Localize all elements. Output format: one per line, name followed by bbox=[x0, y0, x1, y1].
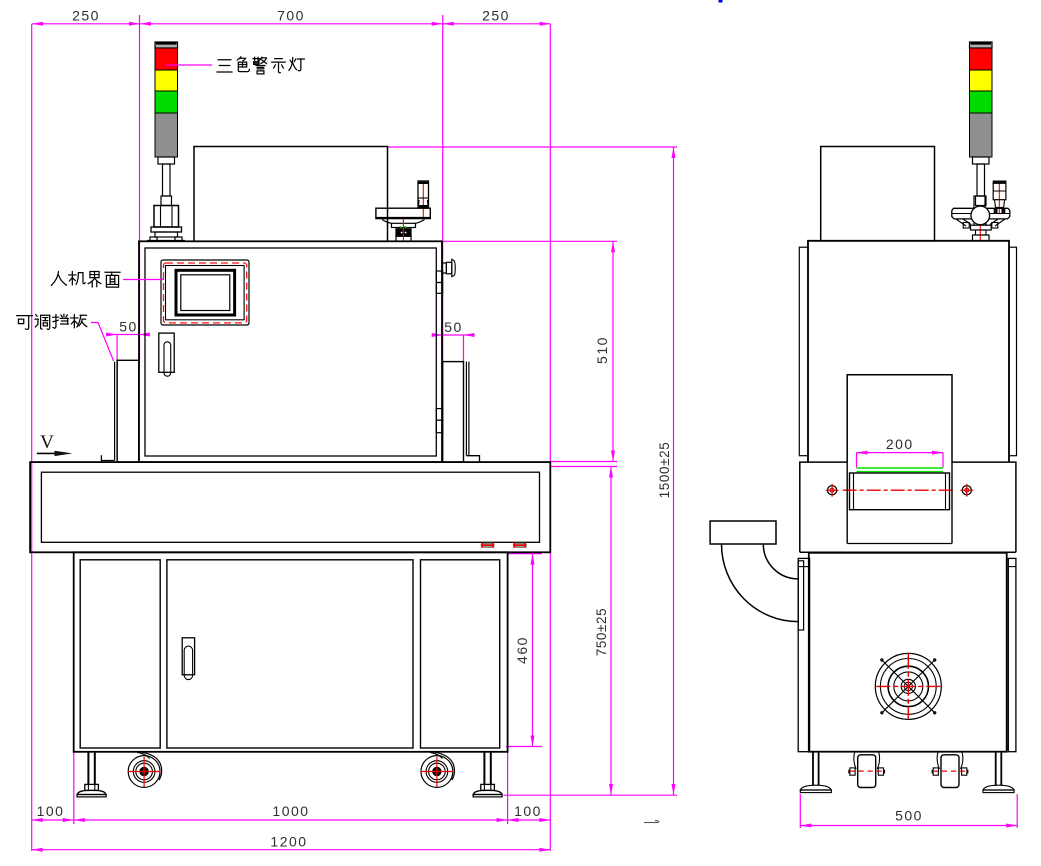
svg-text:1000: 1000 bbox=[272, 803, 309, 819]
svg-text:50: 50 bbox=[119, 319, 138, 335]
svg-text:510: 510 bbox=[594, 336, 610, 364]
svg-text:V: V bbox=[40, 432, 54, 453]
svg-text:50: 50 bbox=[444, 319, 463, 335]
svg-text:500: 500 bbox=[895, 808, 923, 824]
svg-text:250: 250 bbox=[72, 8, 100, 24]
svg-text:1200: 1200 bbox=[270, 834, 307, 850]
svg-text:1500±25: 1500±25 bbox=[657, 442, 672, 499]
svg-text:750±25: 750±25 bbox=[594, 608, 609, 657]
svg-text:100: 100 bbox=[514, 803, 542, 819]
svg-text:100: 100 bbox=[37, 803, 65, 819]
svg-text:460: 460 bbox=[514, 636, 530, 664]
svg-text:200: 200 bbox=[886, 436, 914, 452]
svg-text:250: 250 bbox=[482, 8, 510, 24]
svg-text:700: 700 bbox=[277, 8, 305, 24]
